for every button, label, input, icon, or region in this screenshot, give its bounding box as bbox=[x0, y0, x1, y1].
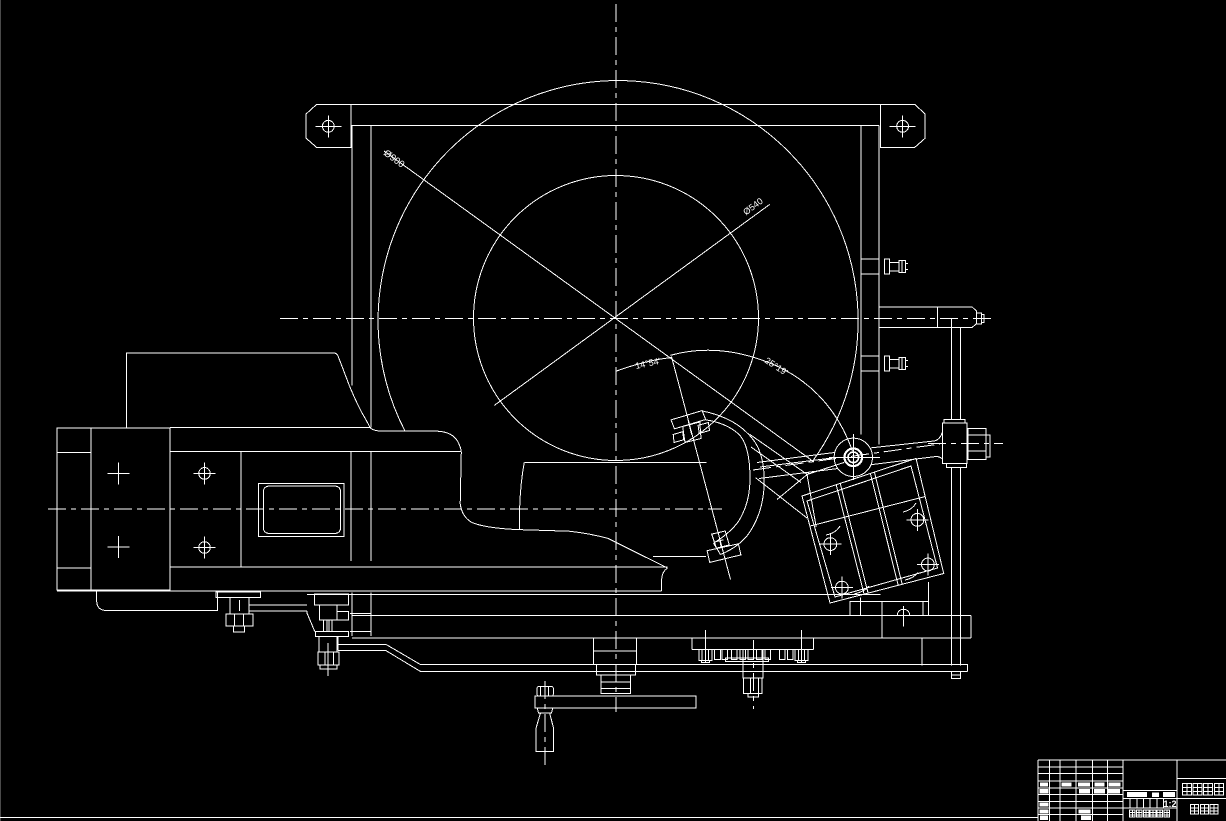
svg-text:1:2: 1:2 bbox=[1164, 799, 1177, 809]
